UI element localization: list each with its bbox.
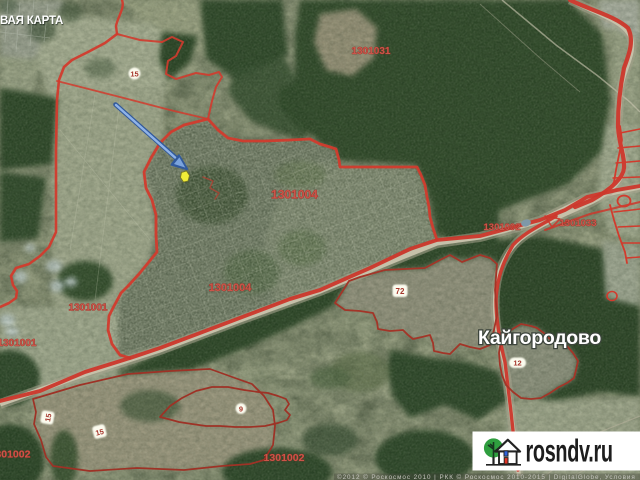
svg-text:1301031: 1301031 — [352, 46, 391, 57]
svg-text:©2012 © Роскосмос 2010 | РКК ©: ©2012 © Роскосмос 2010 | РКК © Роскосмос… — [337, 473, 636, 480]
svg-text:1301033: 1301033 — [560, 218, 597, 229]
svg-text:72: 72 — [396, 287, 405, 296]
svg-text:1301004: 1301004 — [209, 282, 253, 294]
svg-text:Кайгородово: Кайгородово — [478, 327, 601, 349]
svg-text:15: 15 — [43, 413, 53, 423]
svg-text:ВАЯ КАРТА: ВАЯ КАРТА — [0, 15, 63, 27]
svg-text:1301001: 1301001 — [0, 338, 37, 349]
svg-text:1301002: 1301002 — [484, 222, 521, 233]
svg-text:12: 12 — [513, 358, 521, 367]
svg-text:1301002: 1301002 — [264, 452, 305, 464]
svg-text:9: 9 — [239, 404, 243, 413]
svg-text:15: 15 — [130, 69, 138, 78]
svg-text:1301002: 1301002 — [0, 449, 31, 461]
svg-text:1301004: 1301004 — [271, 188, 318, 202]
svg-text:1301001: 1301001 — [69, 303, 108, 314]
svg-text:rosndv.ru: rosndv.ru — [526, 433, 613, 469]
